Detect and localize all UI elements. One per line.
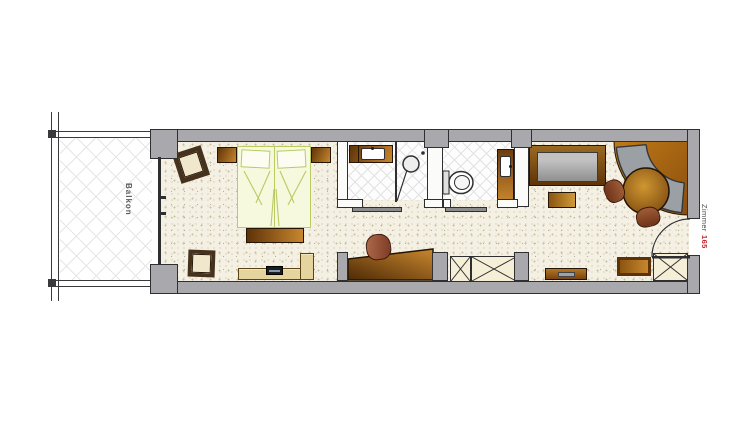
pillar-passage <box>337 252 348 281</box>
pillar-top-wc <box>511 129 532 148</box>
tv-screen <box>269 270 280 272</box>
vanity-divider <box>358 146 359 162</box>
balcony-railing-top <box>51 131 152 138</box>
nightstand-right <box>311 147 331 163</box>
door-swing-arc <box>652 219 690 257</box>
wall-bathroom-wc <box>427 141 443 207</box>
bedroom-chair <box>188 250 216 278</box>
bedroom-cabinet <box>300 253 314 280</box>
nightstand-left <box>217 147 237 163</box>
balcony-door <box>158 157 161 265</box>
wall-wc-south-right <box>497 199 518 208</box>
pillar-corridor-mid <box>432 252 448 281</box>
balcony-railing-left <box>51 112 59 301</box>
pillar-balcony-top <box>150 129 178 159</box>
wc-faucet-dot <box>509 165 512 168</box>
wall-right-upper <box>687 129 700 219</box>
faucet-dot <box>371 147 374 150</box>
room-number-label: Zimmer165 <box>700 204 709 274</box>
room-word: Zimmer <box>700 204 709 232</box>
floor-plan: Balkon <box>0 0 754 435</box>
sliding-door-bathroom <box>352 207 402 212</box>
railing-post <box>48 279 56 287</box>
entrance-door <box>645 212 695 262</box>
wc-vanity <box>497 149 514 203</box>
pillar-corridor-right <box>514 252 529 281</box>
balcony-railing-bottom <box>51 280 152 287</box>
door-leaf <box>652 256 690 259</box>
bathroom-vanity <box>349 145 393 163</box>
balcony-door-handle <box>161 212 166 215</box>
duvet-fold-lines <box>238 147 312 229</box>
toilet-icon <box>442 168 478 198</box>
balcony-label: Balkon <box>124 183 133 243</box>
tv-bedroom <box>266 266 283 275</box>
wall-wc-living <box>514 141 529 207</box>
room-number: 165 <box>700 235 709 249</box>
side-table <box>548 192 576 208</box>
shower-head-icon <box>394 145 428 205</box>
wall-bedroom-bathroom <box>337 141 348 207</box>
double-bed <box>237 146 311 228</box>
wardrobe-large <box>471 256 517 282</box>
sliding-door-wc <box>445 207 487 212</box>
balcony-floor <box>60 138 152 280</box>
sofa-seat <box>537 152 598 182</box>
tv-living <box>558 272 575 277</box>
bed-foot-bench <box>246 228 304 243</box>
pillar-top-bathroom <box>424 129 449 148</box>
tv-console <box>545 268 587 280</box>
railing-post <box>48 130 56 138</box>
wall-bottom <box>150 281 700 294</box>
wardrobe-small <box>450 256 471 282</box>
wall-bathroom-south-right <box>424 199 443 208</box>
balcony-door-handle <box>161 196 166 199</box>
pillar-balcony-bottom <box>150 264 178 294</box>
